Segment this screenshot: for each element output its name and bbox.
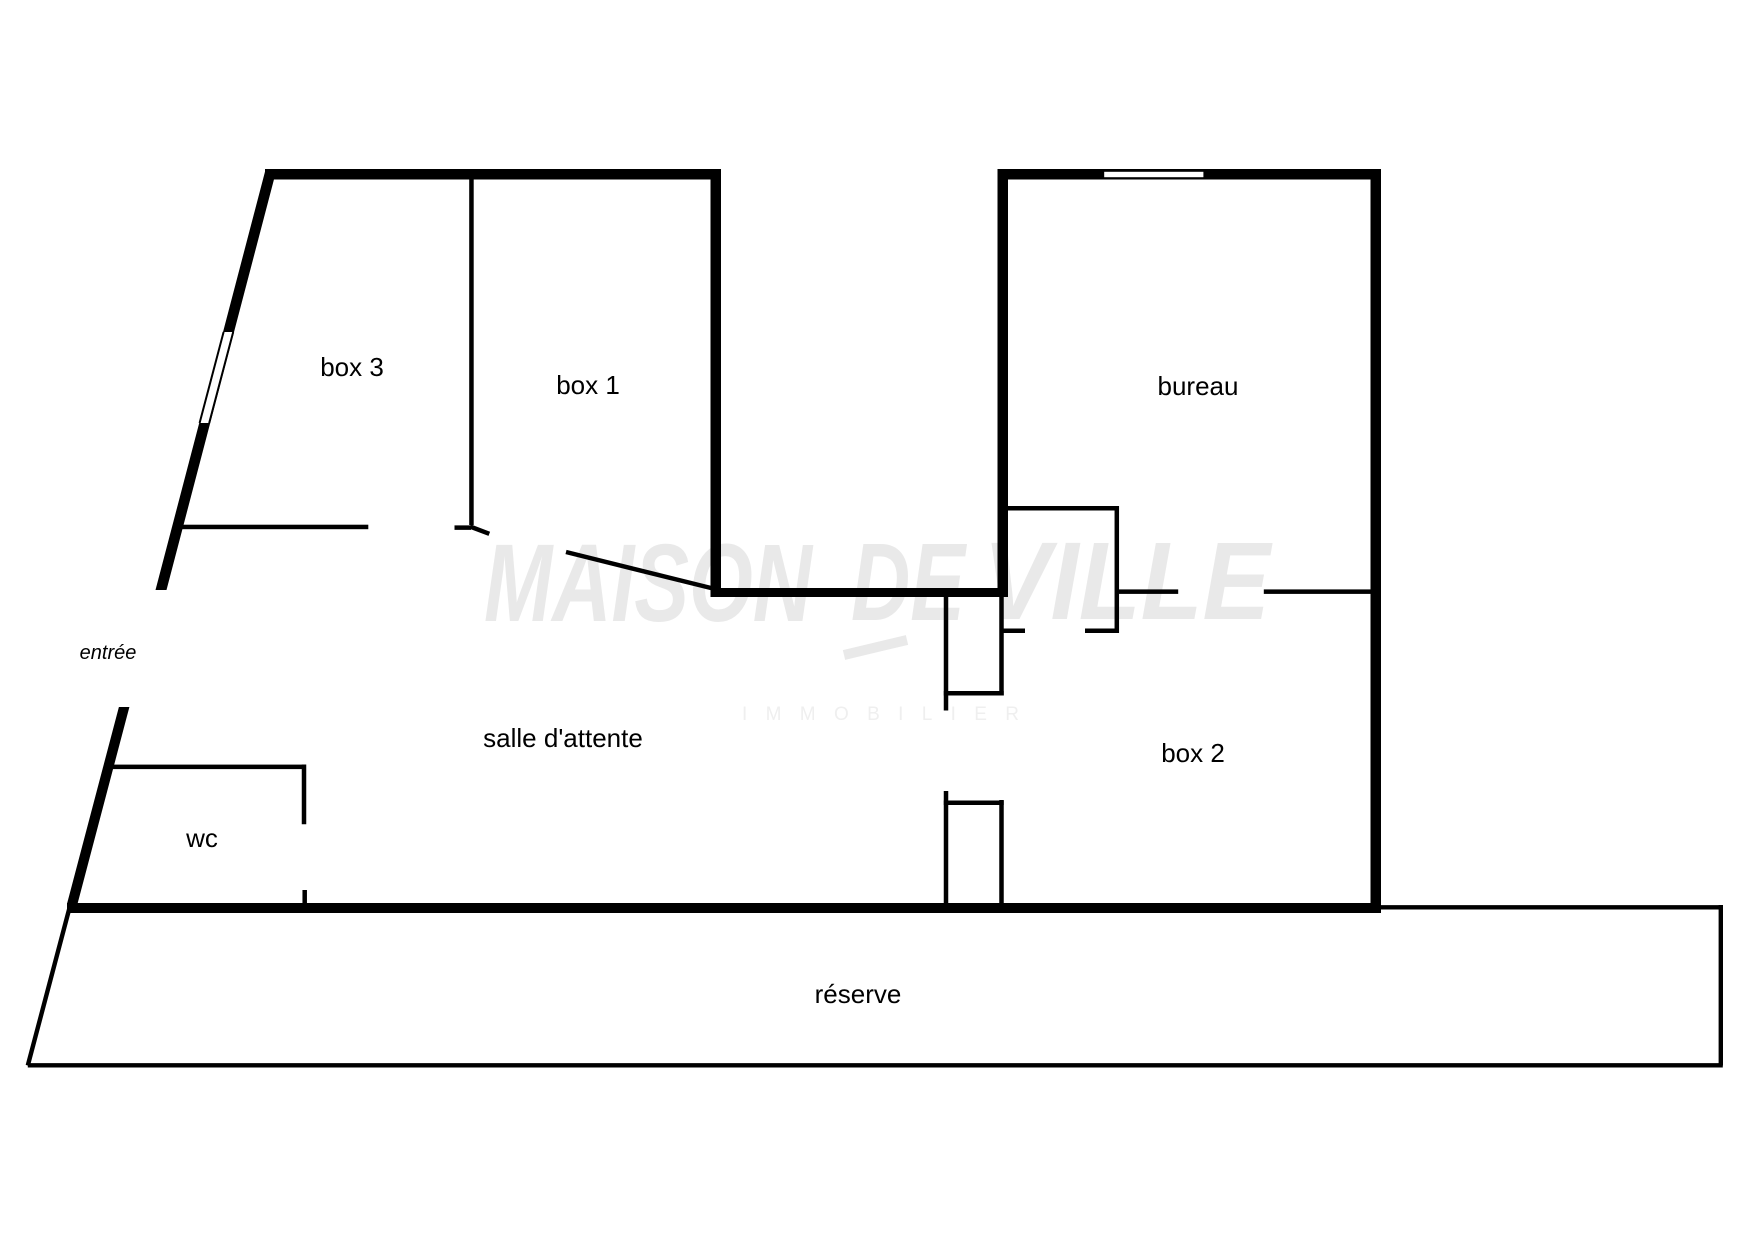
svg-text:DE: DE [851, 521, 968, 644]
svg-text:MAISON: MAISON [484, 522, 814, 645]
svg-text:réserve: réserve [815, 979, 902, 1009]
svg-text:bureau: bureau [1158, 371, 1239, 401]
svg-text:salle d'attente: salle d'attente [483, 723, 643, 753]
svg-text:entrée: entrée [80, 642, 137, 664]
svg-text:box 3: box 3 [320, 352, 384, 382]
svg-text:box 1: box 1 [556, 370, 620, 400]
svg-text:VILLE: VILLE [983, 520, 1273, 643]
svg-text:box 2: box 2 [1161, 738, 1225, 768]
svg-text:wc: wc [185, 823, 218, 853]
